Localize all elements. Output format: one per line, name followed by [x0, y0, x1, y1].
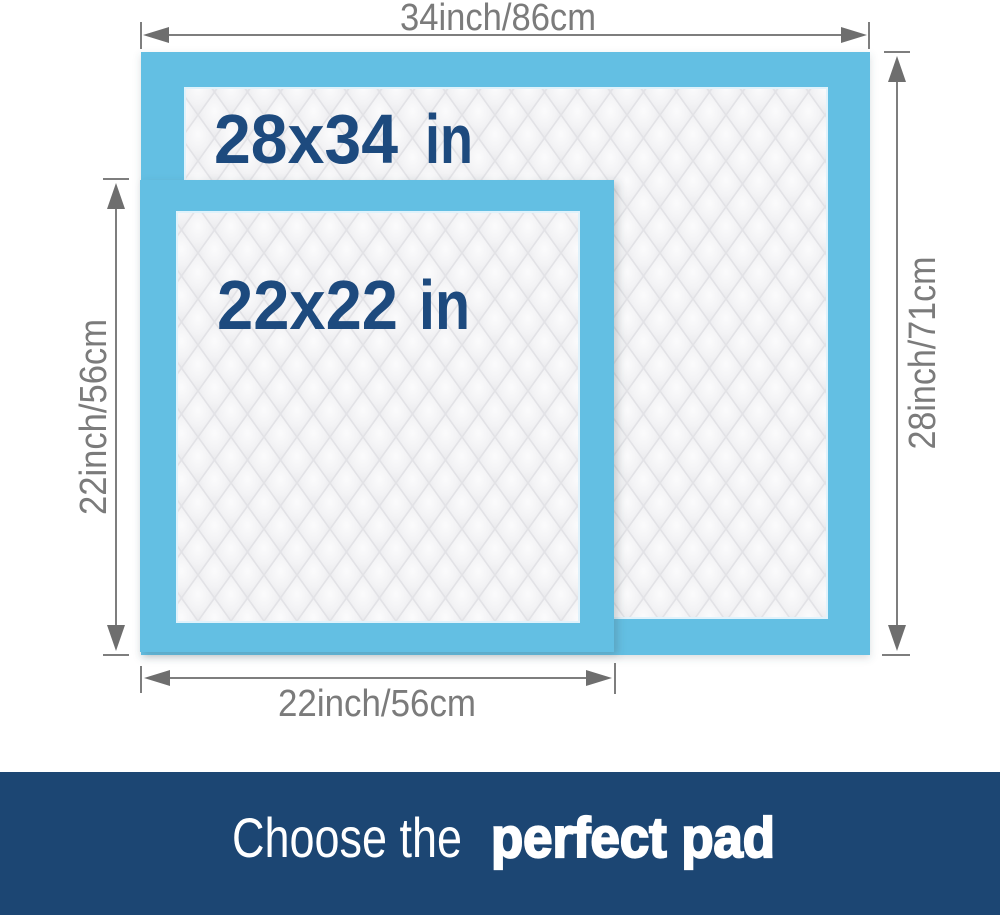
svg-text:22inch/56cm: 22inch/56cm — [278, 683, 476, 725]
svg-text:Choose the: Choose the — [232, 806, 462, 869]
svg-text:perfect pad: perfect pad — [491, 806, 775, 870]
svg-text:34inch/86cm: 34inch/86cm — [400, 0, 596, 39]
svg-text:22x22: 22x22 — [217, 266, 398, 344]
svg-text:in: in — [419, 266, 470, 344]
svg-text:22inch/56cm: 22inch/56cm — [73, 319, 115, 515]
svg-text:in: in — [425, 100, 473, 178]
svg-text:28x34: 28x34 — [214, 100, 398, 178]
svg-text:28inch/71cm: 28inch/71cm — [902, 257, 944, 450]
